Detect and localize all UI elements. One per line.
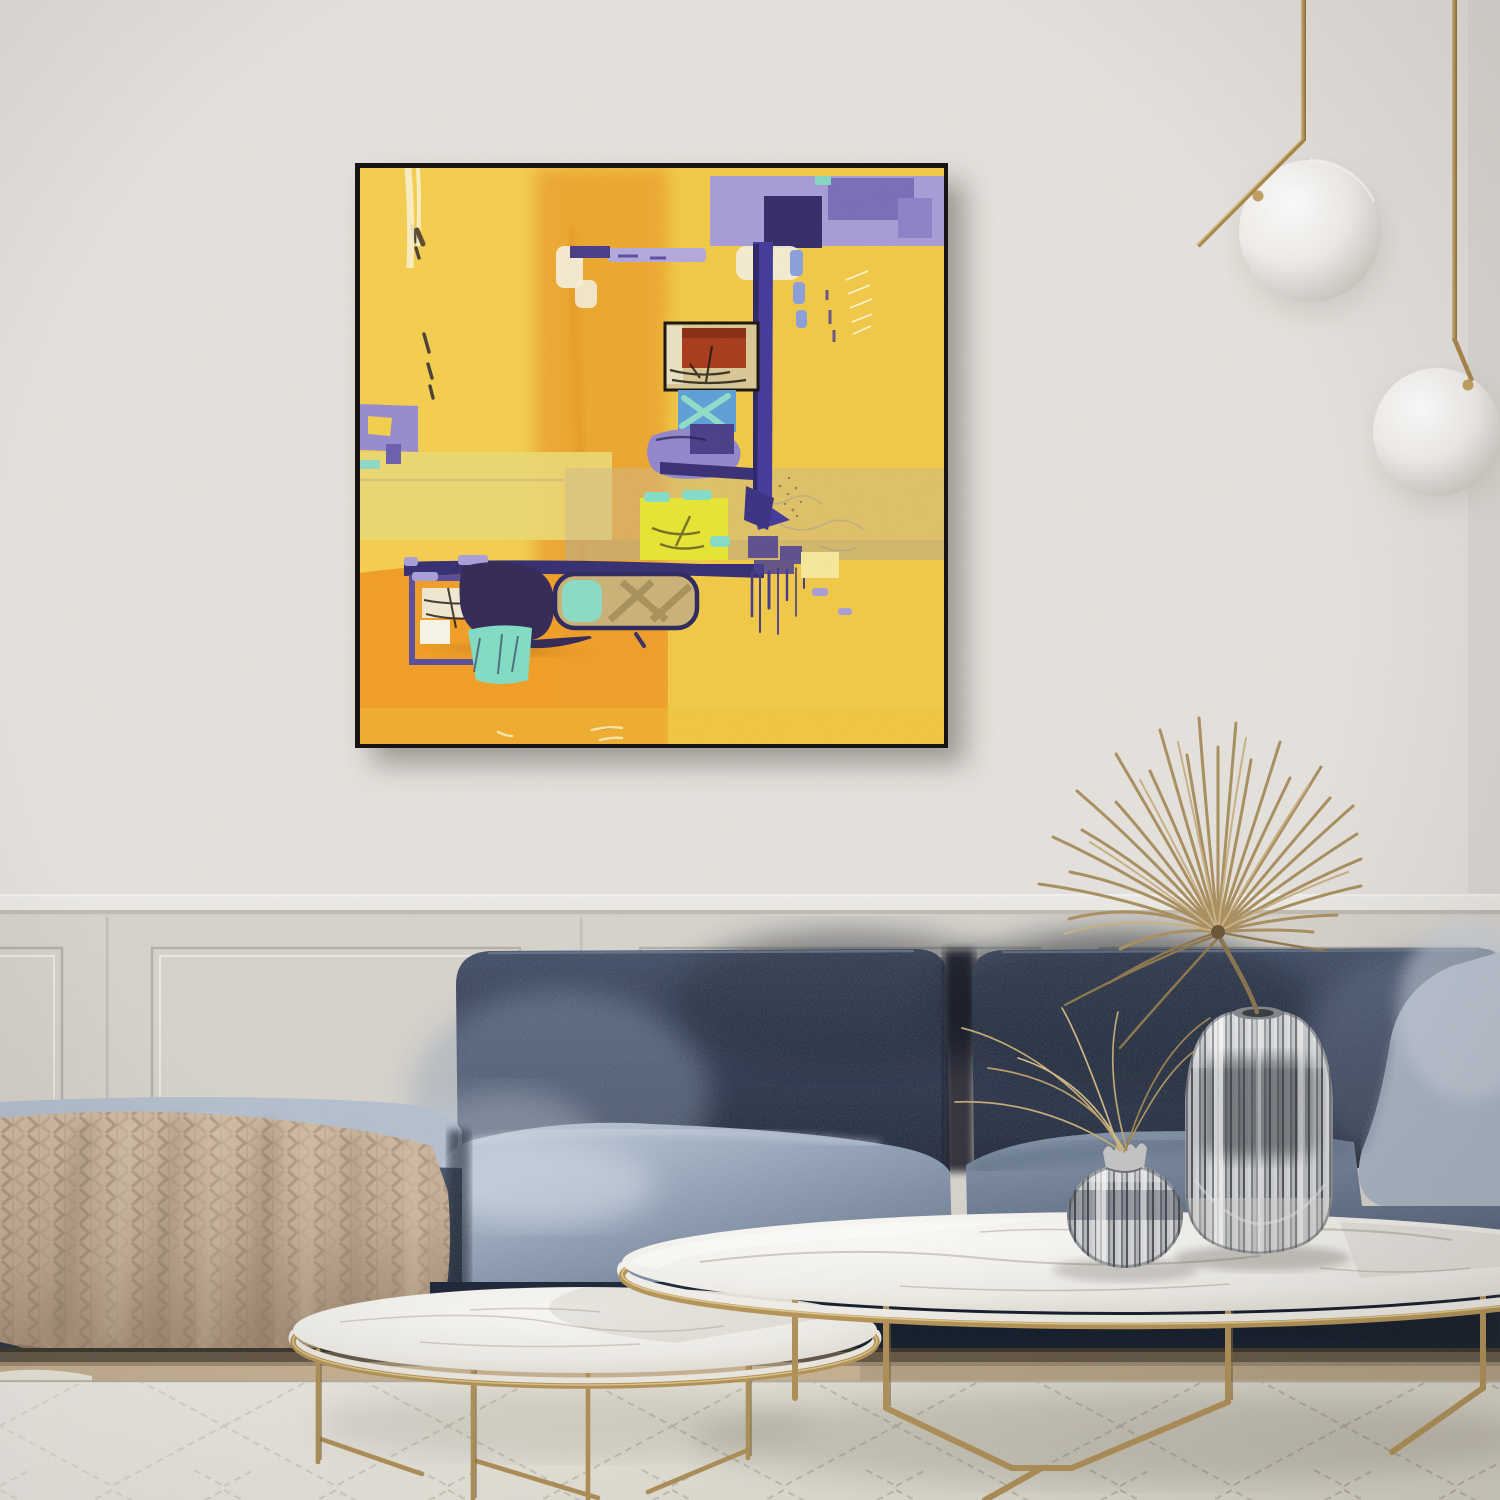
living-room-photo [0,0,1500,1500]
photo-grain [0,0,1500,1500]
